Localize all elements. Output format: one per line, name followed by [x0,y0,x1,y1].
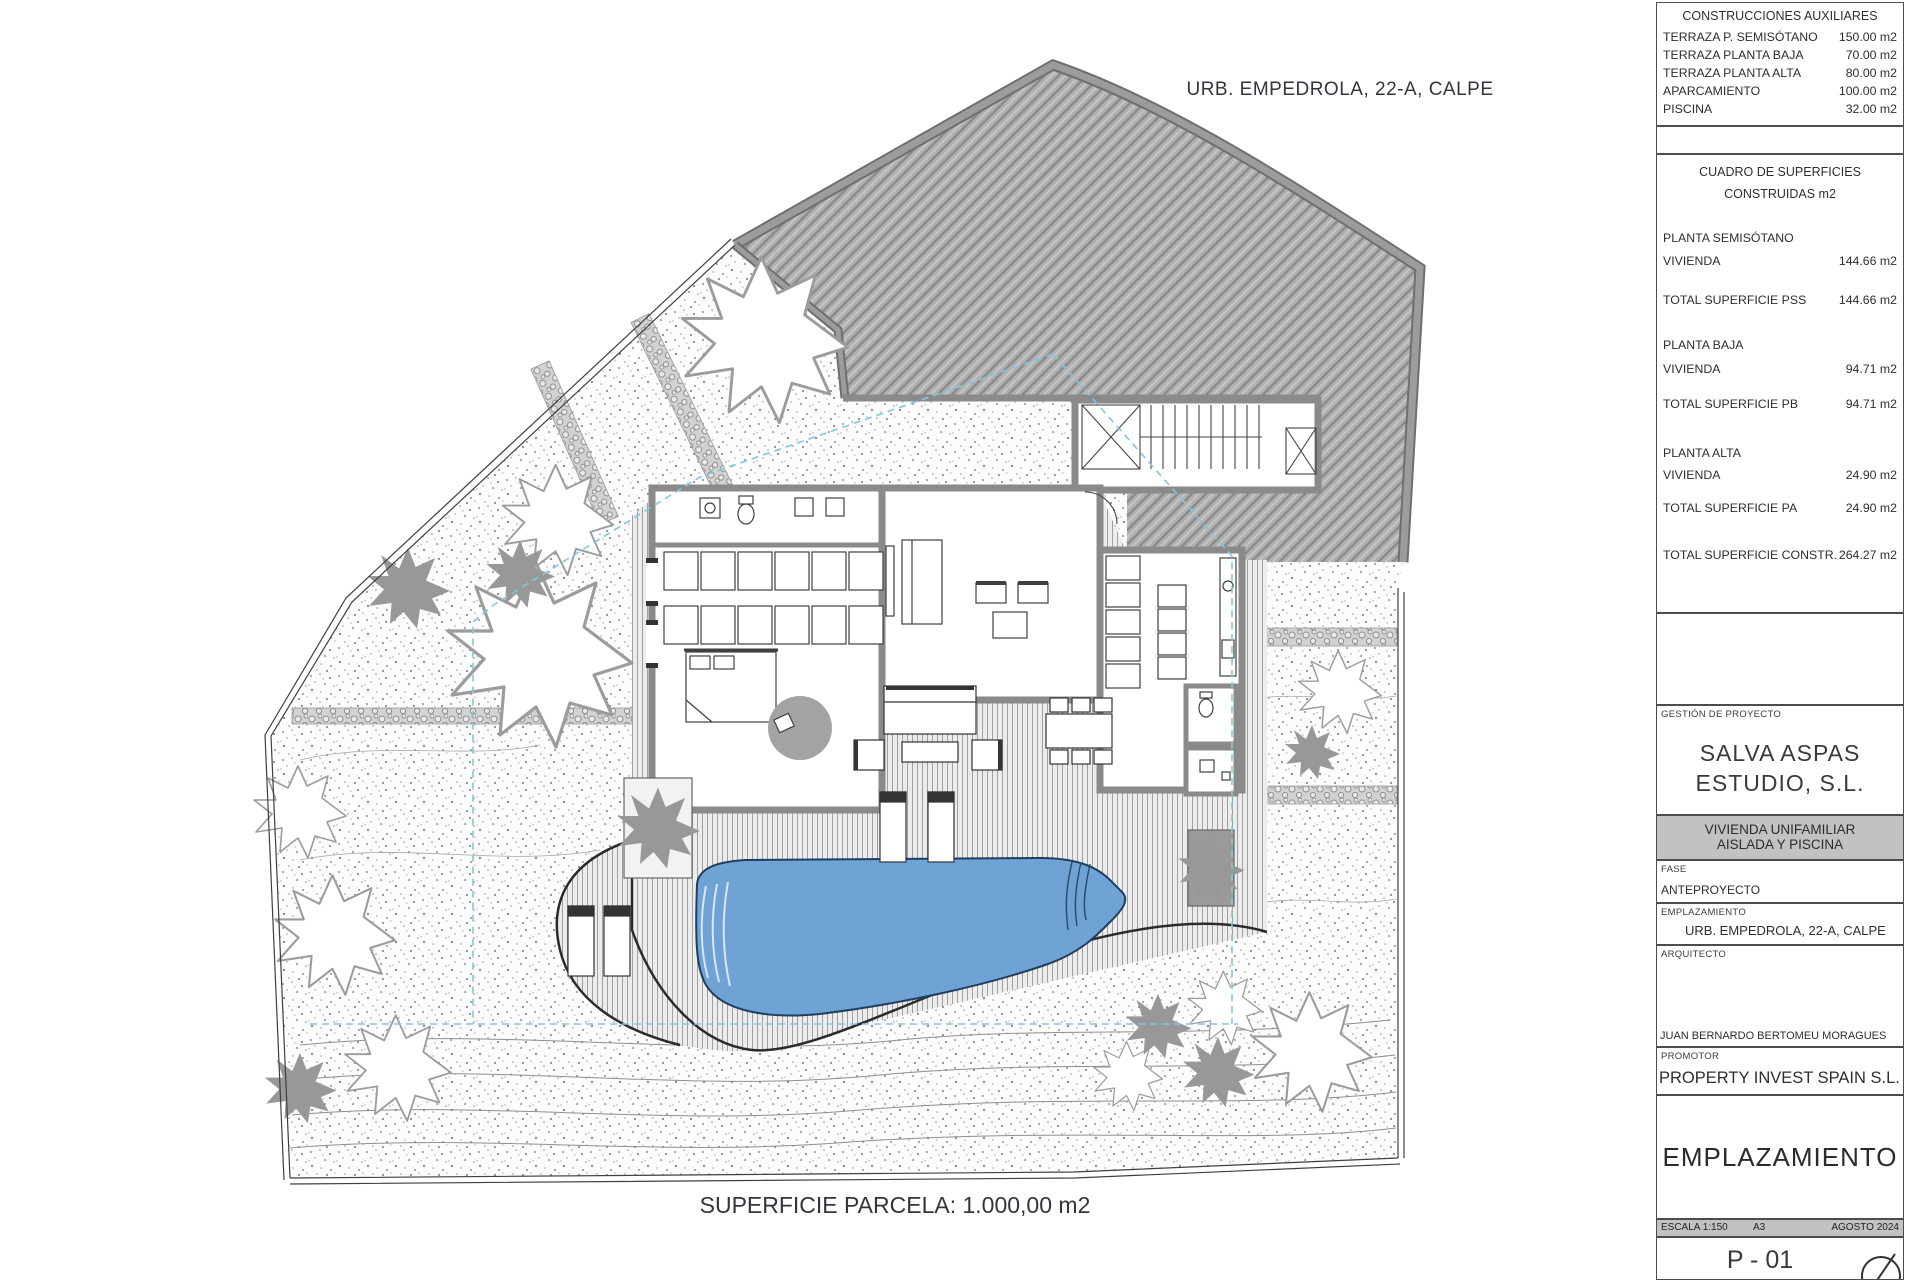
table-row: APARCAMIENTO100.00 m2 [1663,84,1897,98]
architect-box: ARQUITECTO JUAN BERNARDO BERTOMEU MORAGU… [1656,945,1904,1047]
sheet-number-box: P - 01 [1656,1237,1904,1280]
management-label: GESTIÓN DE PROYECTO [1661,709,1781,720]
bed [684,650,778,722]
outdoor-bathrooms [1186,686,1236,794]
table-row: TERRAZA P. SEMISÓTANO150.00 m2 [1663,30,1897,44]
table-row: PISCINA32.00 m2 [1663,102,1897,116]
management-box: GESTIÓN DE PROYECTO SALVA ASPAS ESTUDIO,… [1656,705,1904,815]
aux-table-title: CONSTRUCCIONES AUXILIARES [1657,9,1903,23]
meta-bar: ESCALA 1:150 A3 AGOSTO 2024 [1656,1219,1904,1237]
table-row: VIVIENDA24.90 m2 [1663,468,1897,482]
table-row: TOTAL SUPERFICIE PA24.90 m2 [1663,501,1897,515]
spacer-box [1656,613,1904,705]
sheet-title-box: EMPLAZAMIENTO [1656,1095,1904,1219]
surfaces-subtitle: CONSTRUIDAS m2 [1657,187,1903,201]
date-value: AGOSTO 2024 [1831,1222,1899,1233]
table-row: TERRAZA PLANTA BAJA70.00 m2 [1663,48,1897,62]
promoter-box: PROMOTOR PROPERTY INVEST SPAIN S.L. [1656,1047,1904,1095]
section-heading: PLANTA SEMISÓTANO [1663,231,1794,245]
stair-tower [1075,400,1318,490]
sheet-title: EMPLAZAMIENTO [1657,1142,1903,1173]
spacer-box [1656,126,1904,154]
location-label: EMPLAZAMIENTO [1661,907,1746,918]
studio-name-line1: SALVA ASPAS [1657,740,1903,767]
surfaces-table: CUADRO DE SUPERFICIES CONSTRUIDAS m2 PLA… [1656,154,1904,613]
project-title-line1: VIVIENDA UNIFAMILIAR [1657,822,1903,837]
title-block: CONSTRUCCIONES AUXILIARES TERRAZA P. SEM… [1656,0,1906,1280]
project-title-line2: AISLADA Y PISCINA [1657,837,1903,852]
surfaces-title: CUADRO DE SUPERFICIES [1657,165,1903,179]
north-arrow-icon [1857,1252,1904,1280]
table-row: TERRAZA PLANTA ALTA80.00 m2 [1663,66,1897,80]
dining-set [1046,698,1112,764]
table-row: TOTAL SUPERFICIE PSS144.66 m2 [1663,293,1897,307]
table-row: TOTAL SUPERFICIE PB94.71 m2 [1663,397,1897,411]
paper-format: A3 [1753,1222,1765,1233]
section-heading: PLANTA BAJA [1663,338,1743,352]
parcel-area-label: SUPERFICIE PARCELA: 1.000,00 m2 [700,1192,1091,1218]
fase-value: ANTEPROYECTO [1661,883,1760,897]
table-row: VIVIENDA94.71 m2 [1663,362,1897,376]
promoter-value: PROPERTY INVEST SPAIN S.L. [1659,1069,1900,1088]
architect-value: JUAN BERNARDO BERTOMEU MORAGUES [1660,1030,1886,1042]
architect-label: ARQUITECTO [1661,949,1726,960]
sofa [902,540,942,624]
scale-value: ESCALA 1:150 [1661,1222,1728,1233]
site-plan-drawing: URB. EMPEDROLA, 22-A, CALPE SUPERFICIE P… [0,0,1656,1280]
fase-label: FASE [1661,864,1687,875]
location-value: URB. EMPEDROLA, 22-A, CALPE [1685,923,1886,938]
location-box: EMPLAZAMIENTO URB. EMPEDROLA, 22-A, CALP… [1656,903,1904,945]
studio-name-line2: ESTUDIO, S.L. [1657,770,1903,797]
table-row: VIVIENDA144.66 m2 [1663,254,1897,268]
fase-box: FASE ANTEPROYECTO [1656,860,1904,903]
grand-total-row: TOTAL SUPERFICIE CONSTR.264.27 m2 [1663,548,1897,562]
project-title-band: VIVIENDA UNIFAMILIAR AISLADA Y PISCINA [1656,815,1904,860]
section-heading: PLANTA ALTA [1663,446,1741,460]
site-address-label: URB. EMPEDROLA, 22-A, CALPE [1186,79,1493,100]
promoter-label: PROMOTOR [1661,1051,1719,1062]
sheet-number: P - 01 [1657,1246,1863,1275]
plan-sheet: URB. EMPEDROLA, 22-A, CALPE SUPERFICIE P… [0,0,1920,1280]
aux-constructions-table: CONSTRUCCIONES AUXILIARES TERRAZA P. SEM… [1656,2,1904,126]
